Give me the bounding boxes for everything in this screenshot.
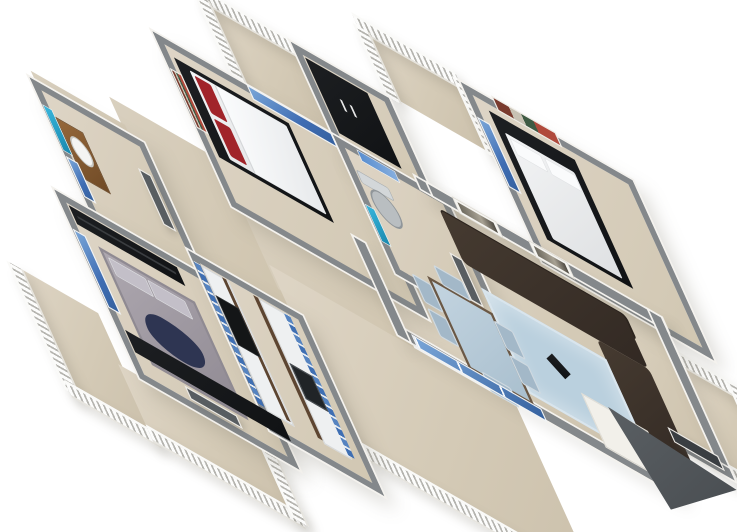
- floorplan-3d-render: [0, 0, 737, 532]
